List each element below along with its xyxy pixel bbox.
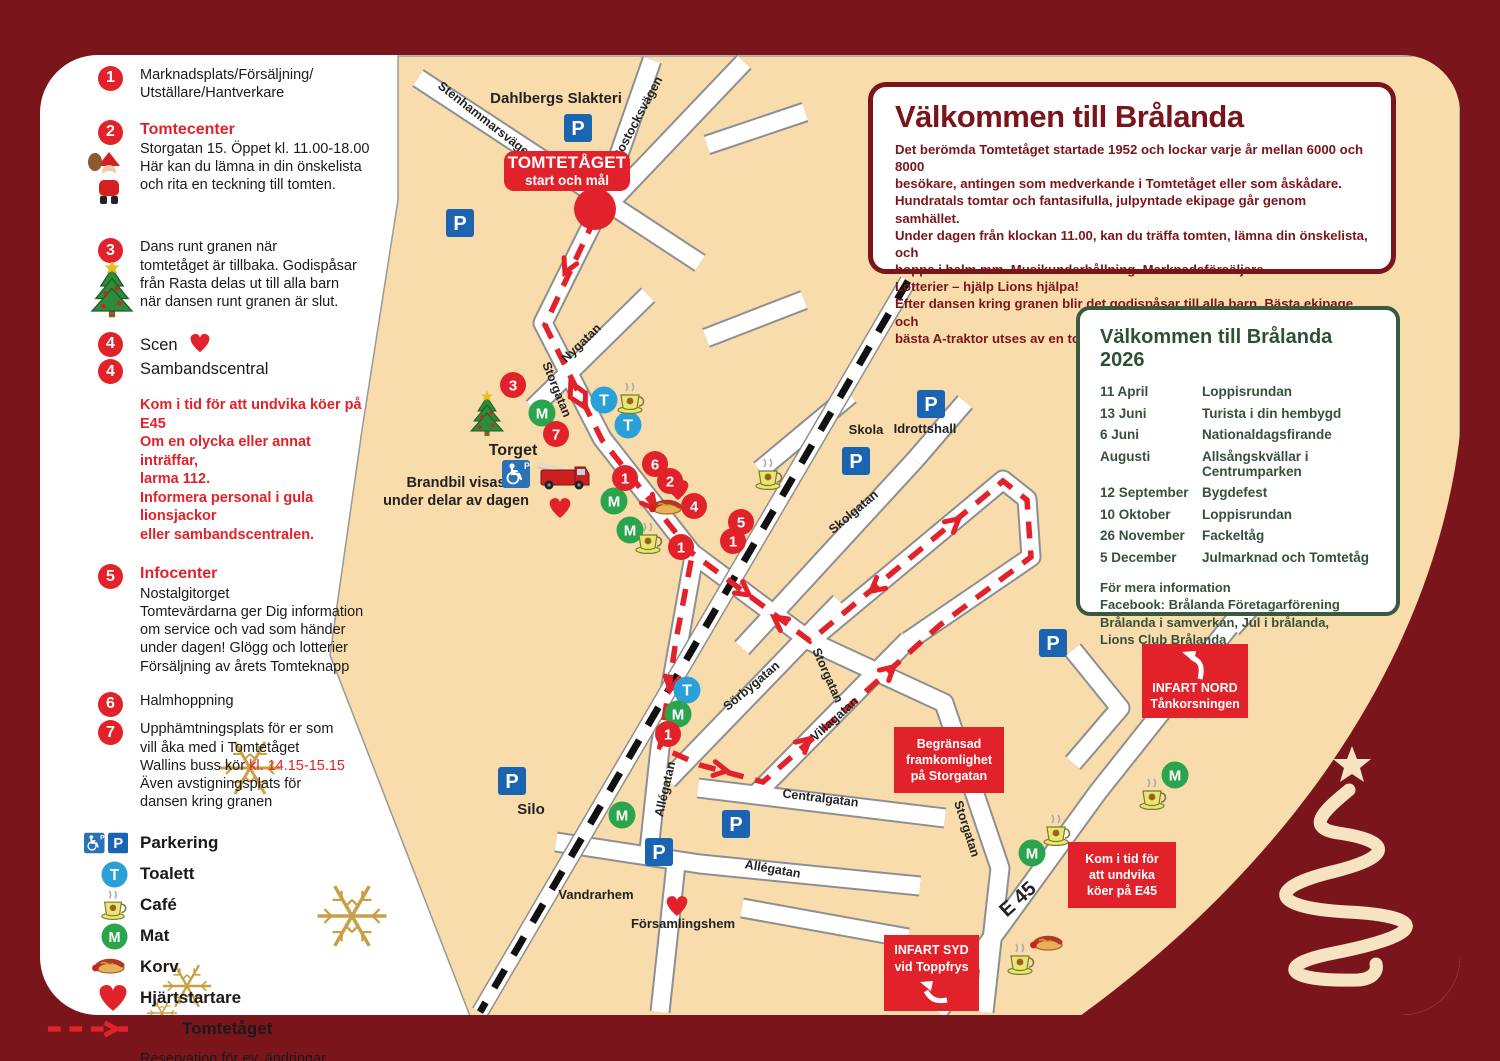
start-sign-title: TOMTETÅGET [508, 153, 627, 173]
legend-heart: Hjärtstartare [84, 983, 372, 1014]
map-marker-p [1039, 629, 1067, 657]
calendar-row: 26 NovemberFackeltåg [1100, 528, 1376, 543]
route-dash-icon [46, 1021, 136, 1037]
legend-korv: Korv [84, 952, 372, 983]
legend-num-2: 2 [98, 120, 123, 145]
map-marker-t [591, 387, 618, 414]
infart-nord-sub: Tånkorsningen [1150, 696, 1240, 712]
legend-text-2: Storgatan 15. Öppet kl. 11.00-18.00 Här … [140, 141, 369, 194]
legend-item-1: 1 Marknadsplats/Försäljning/ Utställare/… [84, 66, 372, 103]
legend-item-7: 7 Upphämtningsplats för er som vill åka … [84, 720, 372, 811]
map-marker-p [842, 447, 870, 475]
street-label: Dahlbergs Slakteri [490, 90, 622, 107]
svg-text:2: 2 [666, 474, 674, 491]
start-sign: TOMTETÅGET start och mål [504, 151, 630, 191]
map-marker-number-4: 4 [681, 493, 707, 519]
map-marker-number-1: 1 [612, 465, 638, 491]
map-marker-m [601, 488, 628, 515]
curved-arrow-icon [1178, 650, 1212, 680]
street-label: Torget [489, 442, 538, 459]
map-marker-t [615, 412, 642, 439]
svg-text:1: 1 [677, 540, 685, 557]
calendar-event: Turista i din hembygd [1202, 406, 1376, 421]
calendar-row: 12 SeptemberBygdefest [1100, 485, 1376, 500]
legend-item-sambandscentral: 4 Sambandscentral [84, 359, 372, 380]
map-marker-p [564, 114, 592, 142]
map-marker-number-1: 1 [668, 534, 694, 560]
svg-text:7: 7 [552, 427, 560, 444]
legend-toilet: Toalett [84, 859, 372, 890]
welcome-box: Välkommen till Brålanda Det berömda Tomt… [868, 82, 1396, 274]
svg-text:6: 6 [651, 457, 659, 474]
infart-nord-sign: INFART NORD Tånkorsningen [1142, 644, 1248, 718]
legend: 1 Marknadsplats/Försäljning/ Utställare/… [84, 56, 372, 1061]
avoid-queues-sign: Kom i tid för att undvika köer på E45 [1068, 842, 1176, 908]
legend-num-3: 3 [98, 238, 123, 263]
calendar-title: Välkommen till Brålanda 2026 [1100, 326, 1376, 372]
legend-cafe-label: Café [140, 895, 177, 915]
legend-item-6: 6 Halmhoppning [84, 692, 372, 710]
legend-heart-label: Hjärtstartare [140, 988, 241, 1008]
map-marker-p [917, 390, 945, 418]
korv-icon [92, 957, 128, 977]
infart-syd-sub: vid Toppfrys [894, 959, 968, 975]
calendar-box: Välkommen till Brålanda 2026 11 AprilLop… [1076, 306, 1400, 616]
map-marker-p [645, 838, 673, 866]
legend-num-5: 5 [98, 564, 123, 589]
calendar-row: 10 OktoberLoppisrundan [1100, 507, 1376, 522]
street-label: Silo [517, 801, 545, 818]
calendar-row: 11 AprilLoppisrundan [1100, 384, 1376, 399]
svg-text:4: 4 [690, 499, 699, 516]
parking-icons [84, 830, 136, 856]
legend-item-3: 3 Dans runt granen när tomtetåget är til… [84, 238, 372, 311]
legend-num-4a: 4 [98, 332, 123, 357]
calendar-event: Allsångskvällar i Centrumparken [1202, 449, 1376, 479]
legend-text-1: Marknadsplats/Försäljning/ Utställare/Ha… [140, 67, 313, 101]
legend-num-1: 1 [98, 66, 123, 91]
map-marker-number-1: 1 [720, 528, 746, 554]
legend-route: Tomtetåget [84, 1014, 372, 1045]
map-marker-hcp [502, 460, 530, 488]
legend-item-scen: 4 Scen [84, 332, 372, 356]
svg-text:1: 1 [621, 471, 629, 488]
map-marker-number-7: 7 [543, 421, 569, 447]
calendar-event: Loppisrundan [1202, 384, 1376, 399]
legend-num-6: 6 [98, 692, 123, 717]
cafe-icon [98, 889, 128, 921]
calendar-row: AugustiAllsångskvällar i Centrumparken [1100, 449, 1376, 479]
legend-title-tomtecenter: Tomtecenter [140, 121, 235, 138]
start-sign-sub: start och mål [525, 173, 609, 189]
legend-title-infocenter: Infocenter [140, 565, 217, 582]
calendar-row: 6 JuniNationaldagsfirande [1100, 427, 1376, 442]
calendar-date: 12 September [1100, 485, 1202, 500]
legend-korv-label: Korv [140, 957, 179, 977]
svg-text:3: 3 [509, 378, 517, 395]
infart-nord-title: INFART NORD [1152, 680, 1237, 696]
map-marker-t [674, 677, 701, 704]
legend-item-2: 2 Tomtecenter Storgatan 15. Öppet kl. 11… [84, 120, 372, 195]
defibrillator-heart-icon [98, 984, 128, 1012]
start-point [574, 188, 616, 230]
handicap-parking-icon [84, 830, 105, 856]
calendar-event: Loppisrundan [1202, 507, 1376, 522]
calendar-date: 6 Juni [1100, 427, 1202, 442]
legend-text-7-time: kl. 14.15-15.15 [249, 758, 345, 774]
legend-food: Mat [84, 921, 372, 952]
calendar-date: Augusti [1100, 449, 1202, 479]
infart-syd-title: INFART SYD [894, 942, 968, 958]
legend-text-3: Dans runt granen när tomtetåget är tillb… [140, 239, 357, 310]
calendar-footer: För mera information Facebook: Brålanda … [1100, 579, 1376, 649]
street-label: Idrottshall [894, 421, 957, 436]
legend-text-6: Halmhoppning [140, 693, 234, 709]
svg-text:1: 1 [729, 534, 737, 551]
map-marker-p [446, 209, 474, 237]
calendar-date: 26 November [1100, 528, 1202, 543]
map-marker-m [1019, 840, 1046, 867]
infart-syd-sign: INFART SYD vid Toppfrys [884, 935, 979, 1011]
map-marker-p [722, 810, 750, 838]
calendar-event: Fackeltåg [1202, 528, 1376, 543]
calendar-rows: 11 AprilLoppisrundan13 JuniTurista i din… [1100, 384, 1376, 565]
map-marker-m [1162, 762, 1189, 789]
calendar-event: Nationaldagsfirande [1202, 427, 1376, 442]
legend-text-scen: Scen [140, 336, 178, 354]
toilet-icon [101, 861, 128, 888]
limited-access-sign: Begränsad framkomlighet på Storgatan [894, 727, 1004, 793]
calendar-event: Bygdefest [1202, 485, 1376, 500]
legend-text-5: Nostalgitorget Tomtevärdarna ger Dig inf… [140, 586, 363, 675]
poster: P P T M [0, 0, 1500, 1061]
parking-icon [108, 830, 129, 856]
legend-num-4b: 4 [98, 359, 123, 384]
legend-parking-label: Parkering [140, 833, 218, 853]
calendar-date: 5 December [1100, 550, 1202, 565]
street-label: Vandrarhem [558, 887, 633, 902]
legend-route-label: Tomtetåget [140, 1019, 272, 1039]
map-marker-number-3: 3 [500, 372, 526, 398]
legend-food-label: Mat [140, 926, 169, 946]
calendar-date: 13 Juni [1100, 406, 1202, 421]
legend-cafe: Café [84, 890, 372, 921]
street-label: Skola [849, 422, 884, 437]
legend-item-5: 5 Infocenter Nostalgitorget Tomtevärdarn… [84, 564, 372, 675]
food-icon [101, 923, 128, 950]
welcome-title: Välkommen till Brålanda [895, 99, 1369, 135]
heart-icon [188, 332, 212, 354]
calendar-date: 11 April [1100, 384, 1202, 399]
calendar-row: 13 JuniTurista i din hembygd [1100, 406, 1376, 421]
legend-warning: Kom i tid för att undvika köer på E45 Om… [84, 396, 372, 544]
legend-num-7: 7 [98, 720, 123, 745]
legend-note: Reservation för ev. ändringar [84, 1051, 372, 1061]
svg-text:1: 1 [664, 727, 672, 744]
legend-text-7: Upphämtningsplats för er som vill åka me… [140, 721, 345, 810]
map-marker-number-2: 2 [657, 468, 683, 494]
legend-parking: Parkering [84, 828, 372, 859]
street-label: Församlingshem [631, 916, 735, 931]
christmas-tree-icon [86, 262, 138, 325]
bent-arrow-icon [915, 978, 949, 1004]
map-marker-p [498, 767, 526, 795]
svg-text:5: 5 [737, 515, 745, 532]
map-marker-m [609, 802, 636, 829]
legend-text-7b: Även avstigningsplats för dansen kring g… [140, 776, 301, 810]
calendar-row: 5 DecemberJulmarknad och Tomtetåg [1100, 550, 1376, 565]
calendar-event: Julmarknad och Tomtetåg [1202, 550, 1376, 565]
map-marker-number-1: 1 [655, 721, 681, 747]
santa-icon [86, 150, 132, 213]
legend-text-sambandscentral: Sambandscentral [140, 360, 268, 378]
calendar-date: 10 Oktober [1100, 507, 1202, 522]
legend-toilet-label: Toalett [140, 864, 194, 884]
